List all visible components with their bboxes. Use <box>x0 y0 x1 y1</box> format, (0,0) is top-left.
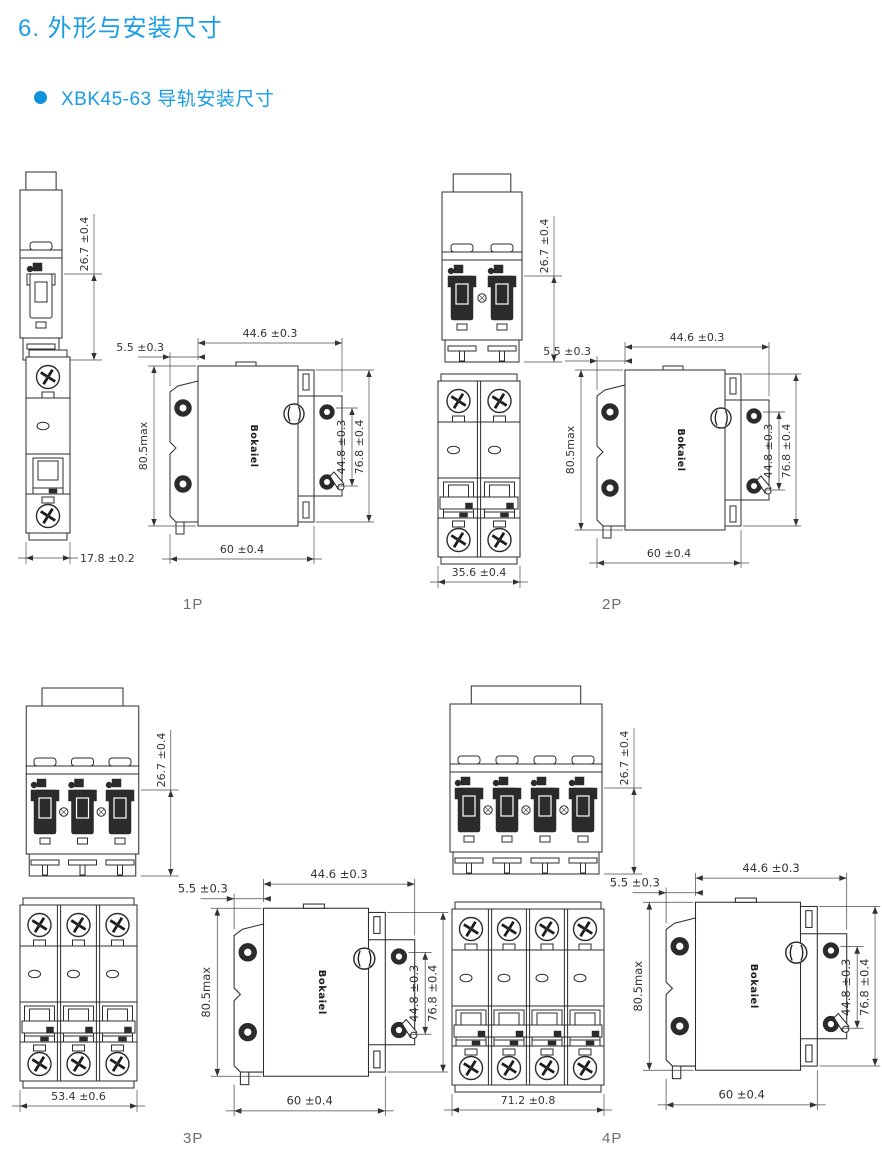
dim-outer-height: 76.8 ±0.4 <box>780 424 793 479</box>
brand-label: Bokaiel <box>748 964 759 1009</box>
dim-top-width: 44.6 ±0.3 <box>310 867 367 881</box>
dim-rail-offset: 5.5 ±0.3 <box>178 882 228 896</box>
panel-4p-top-view: 26.7 ±0.4 <box>448 684 658 884</box>
panel-1p-side-view: Bokaiel44.6 ±0.35.5 ±0.380.5max44.8 ±0.3… <box>88 326 388 576</box>
dim-outer-height: 76.8 ±0.4 <box>858 959 872 1016</box>
brand-label: Bokaiel <box>316 970 327 1015</box>
panel-2p-label: 2P <box>602 596 622 613</box>
dim-rail-offset: 5.5 ±0.3 <box>543 345 591 358</box>
dim-top-width: 44.6 ±0.3 <box>670 331 725 344</box>
dim-top-width: 44.6 ±0.3 <box>742 861 799 875</box>
subtitle-row: XBK45-63 导轨安装尺寸 <box>34 84 274 111</box>
panel-4p-label: 4P <box>602 1130 622 1147</box>
dim-toggle-height: 26.7 ±0.4 <box>538 219 551 274</box>
dim-depth: 60 ±0.4 <box>647 547 691 560</box>
dim-inner-height: 44.8 ±0.3 <box>407 965 421 1022</box>
dim-outer-height: 76.8 ±0.4 <box>353 420 366 475</box>
dim-inner-height: 44.8 ±0.3 <box>839 959 853 1016</box>
dim-toggle-height: 26.7 ±0.4 <box>78 217 91 272</box>
subtitle-label: XBK45-63 导轨安装尺寸 <box>61 84 274 111</box>
dim-depth: 60 ±0.4 <box>719 1088 765 1102</box>
dim-rail-offset: 5.5 ±0.3 <box>116 341 164 354</box>
panel-2p-side-view: Bokaiel44.6 ±0.35.5 ±0.380.5max44.8 ±0.3… <box>515 330 815 580</box>
panel-1p-label: 1P <box>183 596 203 613</box>
panel-3p-top-view: 26.7 ±0.4 <box>24 686 195 886</box>
dim-rail-offset: 5.5 ±0.3 <box>610 876 660 890</box>
dim-toggle-height: 26.7 ±0.4 <box>618 731 631 786</box>
panel-3p-side-view: Bokaiel44.6 ±0.35.5 ±0.380.5max44.8 ±0.3… <box>148 866 463 1129</box>
dim-depth: 60 ±0.4 <box>220 543 264 556</box>
panel-3p-label: 3P <box>183 1130 203 1147</box>
dim-pole-width: 53.4 ±0.6 <box>51 1090 106 1103</box>
brand-label: Bokaiel <box>248 425 259 468</box>
brand-label: Bokaiel <box>675 429 686 472</box>
dim-inner-height: 44.8 ±0.3 <box>335 420 348 475</box>
panel-3p-front-view: 53.4 ±0.6 <box>16 896 159 1118</box>
dim-outer-height: 76.8 ±0.4 <box>426 965 440 1022</box>
dim-body-height: 80.5max <box>199 967 213 1018</box>
dim-pole-width: 71.2 ±0.8 <box>501 1094 556 1107</box>
panel-4p-side-view: Bokaiel44.6 ±0.35.5 ±0.380.5max44.8 ±0.3… <box>580 860 882 1123</box>
dim-pole-width: 35.6 ±0.4 <box>452 566 507 579</box>
dim-inner-height: 44.8 ±0.3 <box>762 424 775 479</box>
page-title: 6. 外形与安装尺寸 <box>18 8 223 43</box>
dim-body-height: 80.5max <box>564 425 577 474</box>
dim-top-width: 44.6 ±0.3 <box>243 327 298 340</box>
bullet-icon <box>34 91 47 104</box>
dim-toggle-height: 26.7 ±0.4 <box>155 733 168 788</box>
dim-depth: 60 ±0.4 <box>287 1094 333 1108</box>
dim-body-height: 80.5max <box>631 961 645 1012</box>
dim-body-height: 80.5max <box>137 421 150 470</box>
